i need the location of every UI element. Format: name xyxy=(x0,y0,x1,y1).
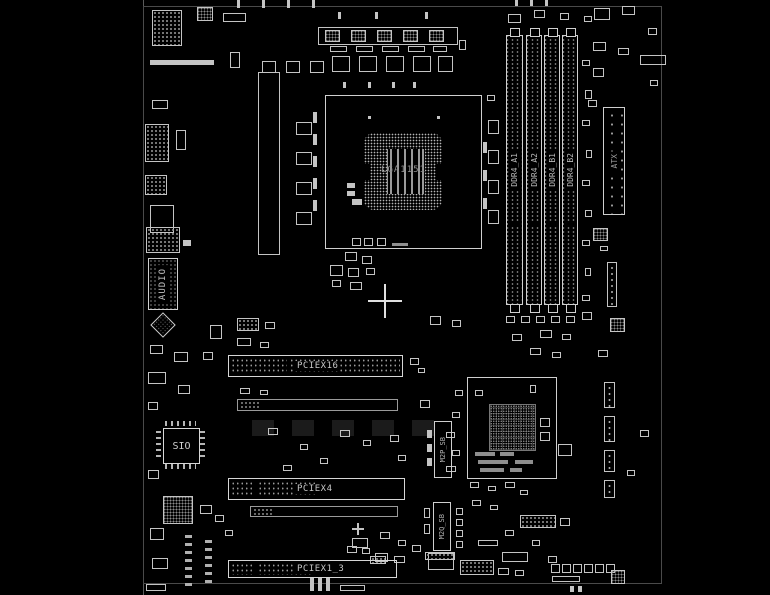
super-io-chip: SIO xyxy=(163,428,200,464)
component xyxy=(320,458,328,464)
component xyxy=(425,552,455,560)
component xyxy=(330,46,347,52)
ddr-latch xyxy=(566,28,576,37)
component xyxy=(356,46,373,52)
component xyxy=(283,465,292,471)
component xyxy=(585,90,592,99)
component xyxy=(593,228,608,241)
ddr-slot: DDR4_B2 xyxy=(562,35,578,305)
component xyxy=(545,0,548,6)
component xyxy=(390,435,399,442)
motherboard-diagram: DDR4_A1DDR4_A2DDR4_B1DDR4_B2 LGA1151 ATX… xyxy=(0,0,770,595)
component xyxy=(460,560,494,575)
ddr-latch xyxy=(548,28,558,37)
component xyxy=(548,556,557,563)
component xyxy=(300,444,308,450)
component xyxy=(584,16,592,22)
component xyxy=(265,322,275,329)
component xyxy=(598,350,608,357)
component xyxy=(478,540,498,546)
component xyxy=(552,576,580,582)
component xyxy=(318,578,322,591)
component xyxy=(225,530,233,536)
component xyxy=(607,262,617,307)
origin-crosshair xyxy=(384,284,386,318)
component xyxy=(600,246,608,251)
ddr-key-notch xyxy=(528,221,540,226)
ddr-latch xyxy=(548,304,558,313)
component xyxy=(584,564,593,573)
component xyxy=(588,100,597,107)
component xyxy=(338,12,341,19)
component xyxy=(260,342,269,348)
pcie-x1-slot-lower xyxy=(250,506,398,517)
component xyxy=(551,564,560,573)
ddr-slot-label: DDR4_A1 xyxy=(510,150,519,190)
ddr-latch xyxy=(530,28,540,37)
component xyxy=(223,13,246,22)
component xyxy=(398,455,406,461)
sio-pins xyxy=(165,421,196,426)
component xyxy=(287,0,290,8)
component xyxy=(347,546,357,553)
chipset-bga-grid xyxy=(489,404,536,451)
slot-key-notch xyxy=(287,356,291,376)
component xyxy=(258,72,280,255)
component xyxy=(296,152,312,165)
component xyxy=(566,316,575,323)
component xyxy=(197,7,213,21)
ddr-latch xyxy=(510,28,520,37)
component xyxy=(427,444,432,452)
ddr-slot: DDR4_A2 xyxy=(526,35,542,305)
component xyxy=(456,541,463,548)
component xyxy=(386,56,404,72)
component xyxy=(532,540,540,546)
component xyxy=(398,540,406,546)
component xyxy=(152,558,168,569)
component xyxy=(286,61,300,73)
component xyxy=(604,450,615,472)
component xyxy=(292,420,314,436)
component xyxy=(520,515,556,528)
ddr-latch xyxy=(530,304,540,313)
component xyxy=(313,200,317,211)
component xyxy=(427,430,432,438)
component xyxy=(622,6,635,15)
component xyxy=(438,56,453,72)
ddr-key-notch xyxy=(546,221,558,226)
component xyxy=(332,56,350,72)
component xyxy=(215,515,224,522)
component xyxy=(363,440,371,446)
component xyxy=(150,345,163,354)
component xyxy=(350,282,362,290)
component xyxy=(604,382,615,408)
component xyxy=(456,530,463,537)
component xyxy=(452,320,461,327)
component xyxy=(582,60,590,66)
component xyxy=(310,578,314,591)
component xyxy=(237,338,251,346)
component xyxy=(326,578,330,591)
component xyxy=(610,318,625,332)
component xyxy=(582,180,590,186)
component xyxy=(424,524,430,534)
component xyxy=(372,420,394,436)
pciex1-3-slot: PCIEX1_3 xyxy=(228,560,397,578)
component xyxy=(640,55,666,65)
m2-top-label: M2P_SB xyxy=(439,437,447,462)
component xyxy=(586,150,592,158)
component xyxy=(483,142,487,153)
component xyxy=(413,82,416,88)
component xyxy=(560,13,569,20)
component xyxy=(488,180,499,194)
component xyxy=(433,46,447,52)
component xyxy=(163,496,193,524)
component xyxy=(582,240,590,246)
component xyxy=(240,388,250,394)
component xyxy=(313,178,317,189)
ddr-slot-label: DDR4_B1 xyxy=(548,150,557,190)
component xyxy=(377,30,392,42)
component xyxy=(595,564,604,573)
component xyxy=(210,325,222,339)
component xyxy=(455,390,463,396)
component xyxy=(183,240,191,246)
component xyxy=(152,100,168,109)
component xyxy=(650,80,658,86)
component xyxy=(488,486,496,491)
component xyxy=(452,450,460,456)
component xyxy=(178,385,190,394)
component xyxy=(456,519,463,526)
sio-pins xyxy=(200,431,205,459)
component xyxy=(505,530,514,536)
component xyxy=(640,430,649,437)
component xyxy=(408,46,425,52)
component xyxy=(366,268,375,275)
audio-label: AUDIO xyxy=(158,265,168,303)
component xyxy=(262,0,265,8)
component xyxy=(150,60,214,65)
component xyxy=(515,0,518,6)
component xyxy=(530,348,541,355)
component xyxy=(268,428,278,435)
component xyxy=(552,352,561,358)
sio-label: SIO xyxy=(172,441,190,452)
component xyxy=(351,30,366,42)
component xyxy=(380,532,390,539)
atx-label: ATX xyxy=(610,151,619,171)
ddr-slot: DDR4_A1 xyxy=(506,35,523,305)
sio-pins xyxy=(156,431,161,459)
component xyxy=(627,470,635,476)
component xyxy=(410,358,419,365)
component xyxy=(505,482,515,488)
component xyxy=(470,482,479,488)
atx-power-connector: ATX xyxy=(603,107,625,215)
component xyxy=(520,490,528,495)
component xyxy=(296,122,312,135)
component xyxy=(593,42,606,51)
component xyxy=(594,8,610,20)
component xyxy=(150,528,164,540)
ddr-latch xyxy=(566,304,576,313)
component xyxy=(357,523,359,535)
m2-connector-bottom: M2Q_SB xyxy=(433,502,451,551)
component xyxy=(332,280,341,287)
component xyxy=(483,198,487,209)
component xyxy=(310,61,324,73)
component xyxy=(146,227,180,253)
component xyxy=(237,318,259,331)
component xyxy=(648,28,657,35)
component xyxy=(540,330,552,338)
component xyxy=(362,548,370,554)
component xyxy=(429,30,444,42)
component xyxy=(570,586,574,592)
component xyxy=(452,412,460,418)
m2-connector-top: M2P_SB xyxy=(434,421,452,478)
component xyxy=(562,334,571,340)
component xyxy=(200,505,212,514)
component xyxy=(230,52,240,68)
slot-key-notch xyxy=(255,479,259,499)
component xyxy=(508,14,521,23)
component xyxy=(578,586,582,592)
component xyxy=(296,182,312,195)
component xyxy=(488,210,499,224)
component xyxy=(375,12,378,19)
pciex16-slot: PCIEX16 xyxy=(228,355,403,377)
component xyxy=(604,480,615,498)
component xyxy=(560,518,570,526)
component xyxy=(148,402,158,410)
component xyxy=(392,82,395,88)
component xyxy=(313,156,317,167)
component xyxy=(313,112,317,123)
component xyxy=(412,545,421,552)
component xyxy=(536,316,545,323)
component xyxy=(185,535,192,587)
component xyxy=(483,170,487,181)
ddr-latch xyxy=(510,304,520,313)
component xyxy=(534,10,545,18)
component xyxy=(611,570,625,584)
component xyxy=(340,585,365,591)
component xyxy=(585,210,592,217)
component xyxy=(345,252,357,261)
component xyxy=(562,564,571,573)
slot-pin-field xyxy=(240,401,260,409)
component xyxy=(515,570,524,576)
component xyxy=(551,316,560,323)
audio-codec-area: AUDIO xyxy=(148,258,178,310)
component xyxy=(359,56,377,72)
component xyxy=(313,134,317,145)
component xyxy=(582,295,590,301)
ddr-slot: DDR4_B1 xyxy=(544,35,560,305)
component xyxy=(237,0,240,8)
component xyxy=(425,12,428,19)
component xyxy=(403,30,418,42)
component xyxy=(413,56,431,72)
component xyxy=(362,256,372,264)
pciex1-3-label: PCIEX1_3 xyxy=(295,564,346,574)
component xyxy=(312,0,315,8)
component xyxy=(146,584,166,591)
sio-pins xyxy=(165,464,196,469)
component xyxy=(585,268,591,276)
component xyxy=(618,48,629,55)
component xyxy=(582,312,592,320)
component xyxy=(330,265,343,276)
ddr-slot-label: DDR4_B2 xyxy=(566,150,575,190)
slot-pin-field xyxy=(253,508,273,515)
component xyxy=(145,175,167,195)
component xyxy=(382,46,399,52)
component xyxy=(488,150,499,164)
ddr-key-notch xyxy=(564,221,576,226)
component xyxy=(424,508,430,518)
component xyxy=(530,0,533,6)
component xyxy=(418,368,425,373)
component xyxy=(459,40,466,50)
component xyxy=(502,552,528,562)
component xyxy=(573,564,582,573)
component xyxy=(203,352,213,360)
component xyxy=(506,316,515,323)
component xyxy=(260,390,268,395)
ddr-slot-label: DDR4_A2 xyxy=(530,150,539,190)
component xyxy=(604,416,615,442)
component xyxy=(152,10,182,46)
component xyxy=(593,68,604,77)
component xyxy=(340,430,350,437)
component xyxy=(343,82,346,88)
m2-bottom-label: M2Q_SB xyxy=(438,514,446,539)
cpu-socket-label: LGA1151 xyxy=(326,165,481,175)
ddr-key-notch xyxy=(508,221,521,226)
component xyxy=(521,316,530,323)
component xyxy=(205,540,212,587)
component xyxy=(490,505,498,510)
component xyxy=(456,508,463,515)
component xyxy=(472,500,481,506)
component xyxy=(325,30,340,42)
cpu-socket: LGA1151 xyxy=(325,95,482,249)
pciex16-label: PCIEX16 xyxy=(295,361,340,371)
component xyxy=(582,120,590,126)
component xyxy=(558,444,572,456)
component xyxy=(176,130,186,150)
component xyxy=(368,82,371,88)
slot-key-notch xyxy=(255,561,259,577)
component xyxy=(148,372,166,384)
component xyxy=(512,334,522,341)
pciex4-label: PCIEX4 xyxy=(295,484,335,494)
component xyxy=(487,95,495,101)
pciex4-slot: PCIEX4 xyxy=(228,478,405,500)
chipset xyxy=(467,377,557,479)
component xyxy=(174,352,188,362)
component xyxy=(420,400,430,408)
component xyxy=(348,268,359,277)
component xyxy=(145,124,169,162)
component xyxy=(148,470,159,479)
pcie-x1-slot-upper xyxy=(237,399,398,411)
component xyxy=(488,120,499,134)
component xyxy=(498,568,509,575)
component xyxy=(427,458,432,466)
component xyxy=(430,316,441,325)
component xyxy=(296,212,312,225)
